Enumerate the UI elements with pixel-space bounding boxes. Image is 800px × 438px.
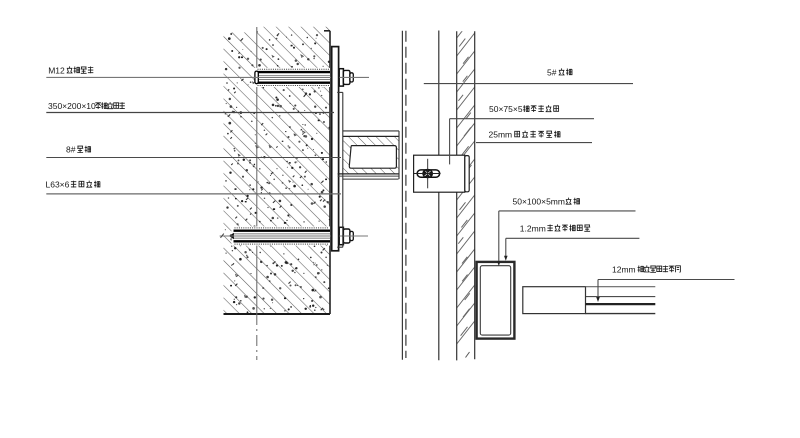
svg-text:350×200×10: 350×200×10	[48, 101, 96, 111]
svg-text:12mm: 12mm	[612, 264, 636, 274]
svg-text:L63×6: L63×6	[46, 180, 70, 190]
svg-text:50×100×5mm: 50×100×5mm	[513, 197, 565, 207]
svg-text:50×75×5: 50×75×5	[489, 104, 523, 114]
svg-text:5#: 5#	[547, 67, 557, 77]
svg-text:25mm: 25mm	[489, 130, 513, 140]
svg-text:8#: 8#	[66, 145, 76, 155]
svg-text:1.2mm: 1.2mm	[520, 223, 546, 233]
svg-text:M12: M12	[48, 65, 65, 75]
